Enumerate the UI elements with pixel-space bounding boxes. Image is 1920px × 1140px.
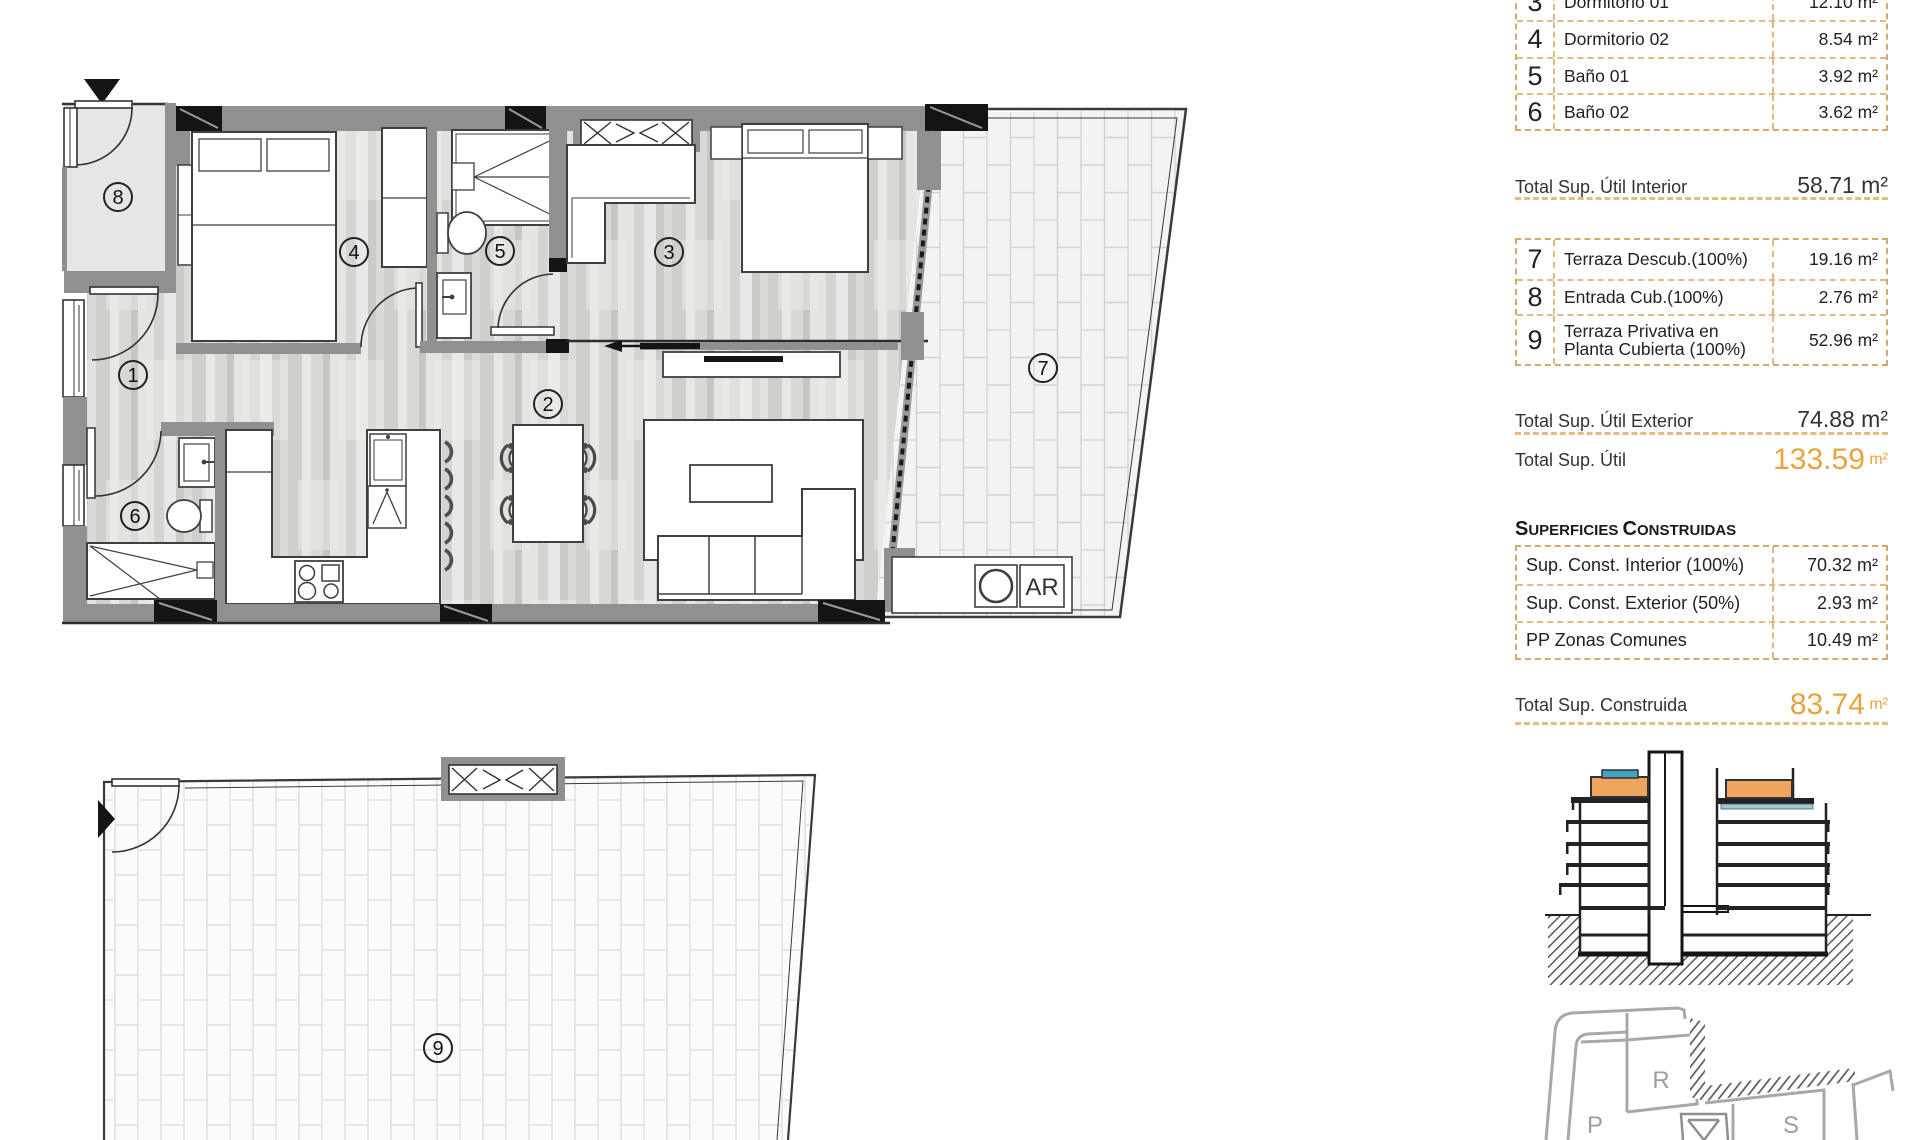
svg-text:8: 8 <box>112 187 123 209</box>
svg-text:9: 9 <box>432 1038 443 1060</box>
svg-text:7: 7 <box>1037 358 1048 380</box>
svg-text:2: 2 <box>542 394 553 416</box>
svg-text:AR: AR <box>1025 574 1058 601</box>
svg-text:R: R <box>1652 1067 1669 1094</box>
svg-text:5: 5 <box>494 241 505 263</box>
svg-text:6: 6 <box>129 506 140 528</box>
svg-text:1: 1 <box>127 365 138 387</box>
svg-text:4: 4 <box>348 242 359 264</box>
svg-text:3: 3 <box>663 242 674 264</box>
svg-text:S: S <box>1783 1112 1799 1139</box>
svg-text:P: P <box>1587 1112 1603 1139</box>
